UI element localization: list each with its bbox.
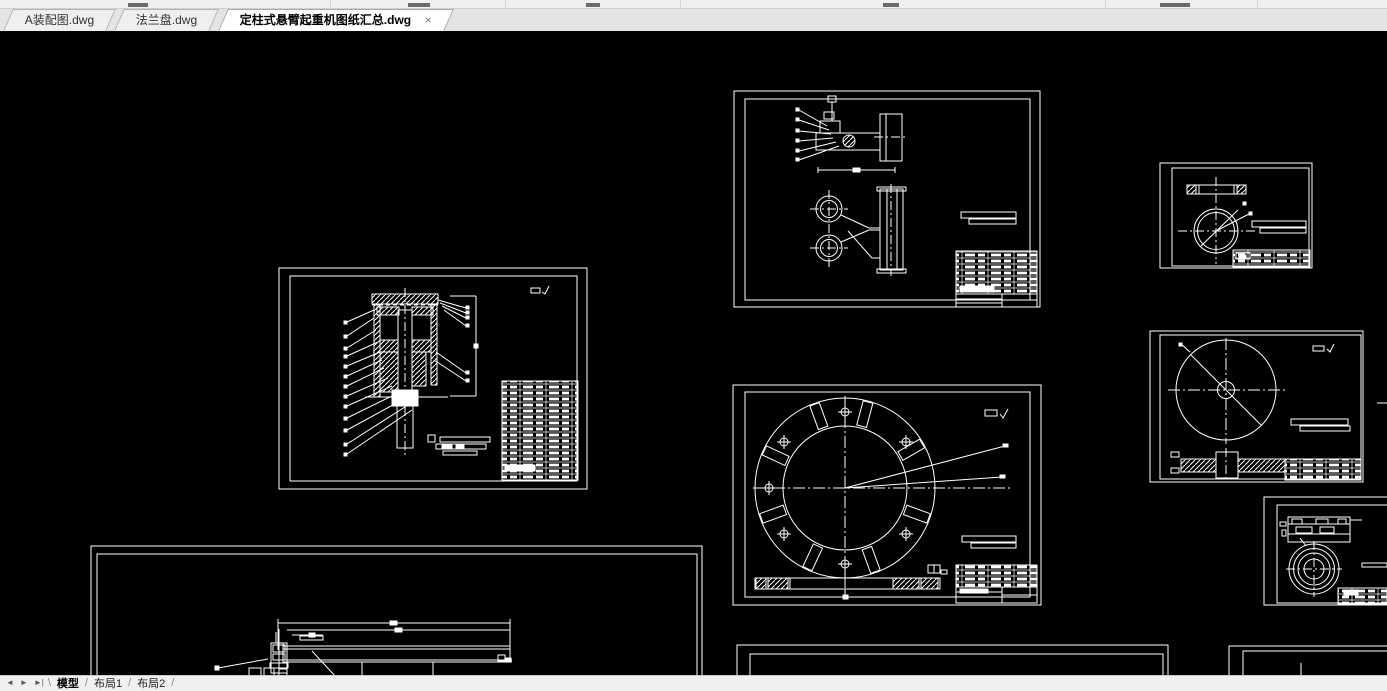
- layout-tab-bar: ◄ ► ►| \ 模型 / 布局1 / 布局2 /: [0, 675, 1387, 689]
- file-tab-flange[interactable]: 法兰盘.dwg: [114, 9, 219, 31]
- ribbon-panel-divider: [1257, 0, 1258, 8]
- file-tab-label: A装配图.dwg: [25, 10, 94, 31]
- sheet-disc-wheel[interactable]: [1150, 331, 1363, 482]
- sheet-bearing-detail[interactable]: [1264, 497, 1387, 605]
- ribbon-text-fragment: [408, 3, 430, 7]
- file-tab-label: 法兰盘.dwg: [136, 10, 197, 31]
- sheet-flange-face[interactable]: [733, 385, 1041, 605]
- file-tab-label: 定柱式悬臂起重机图纸汇总.dwg: [239, 10, 410, 31]
- note-bars: [961, 212, 1016, 224]
- tab-layout1[interactable]: 布局1: [89, 675, 127, 691]
- model-space-canvas[interactable]: [0, 31, 1387, 675]
- tab-nav-forward-icon[interactable]: ►: [20, 678, 28, 687]
- title-block: [1338, 588, 1387, 604]
- tab-nav-back-icon[interactable]: ◄: [6, 678, 14, 687]
- surface-finish-symbol: [985, 409, 1008, 418]
- ribbon-text-fragment: [586, 3, 600, 7]
- close-icon[interactable]: ×: [425, 10, 432, 31]
- title-block: [956, 251, 1037, 307]
- note-bars: [962, 536, 1016, 548]
- lower-roller-view: [810, 184, 906, 276]
- surface-finish-symbol: [1313, 344, 1334, 352]
- ribbon-panel-divider: [680, 0, 681, 8]
- parts-list-table: [502, 381, 578, 480]
- disc-view: [1168, 338, 1286, 444]
- tab-model[interactable]: 模型: [52, 675, 84, 691]
- file-tab-a-assembly[interactable]: A装配图.dwg: [3, 9, 116, 31]
- ribbon-panel-divider: [505, 0, 506, 8]
- ribbon-panel-divider: [330, 0, 331, 8]
- tab-layout2[interactable]: 布局2: [132, 675, 170, 691]
- sheet-crane-general-view[interactable]: [91, 546, 702, 675]
- title-block: [1285, 459, 1361, 480]
- ribbon-text-fragment: [1160, 3, 1190, 7]
- ribbon-panel-divider: [1105, 0, 1106, 8]
- ribbon-text-fragment: [883, 3, 899, 7]
- note-bars: [1291, 419, 1350, 431]
- file-tab-crane-summary[interactable]: 定柱式悬臂起重机图纸汇总.dwg×: [218, 9, 454, 31]
- sheet-roller-bracket[interactable]: [734, 91, 1040, 307]
- surface-finish-symbol: [531, 286, 549, 294]
- flange-circle-view: [753, 396, 1010, 588]
- ribbon-strip: [0, 0, 1387, 8]
- upper-section-view: [796, 96, 908, 173]
- bearing-top-view: [1280, 517, 1362, 542]
- bearing-circles-view: [1286, 538, 1342, 597]
- title-block: [1233, 250, 1310, 267]
- dimension-bracket: [450, 296, 478, 396]
- jib-beam-view: [215, 619, 512, 675]
- sheet-bottom-middle[interactable]: [737, 645, 1168, 675]
- sheet-column-assembly[interactable]: [279, 268, 587, 489]
- balloon-leaders-right: [434, 300, 469, 382]
- tab-separator: /: [170, 677, 175, 689]
- sheet-ring-plate[interactable]: [1160, 163, 1312, 268]
- ribbon-text-fragment: [128, 3, 148, 7]
- sheet-bottom-right[interactable]: [1229, 646, 1387, 675]
- note-bar: [1362, 563, 1387, 567]
- file-tab-bar: A装配图.dwg 法兰盘.dwg 定柱式悬臂起重机图纸汇总.dwg×: [0, 8, 1387, 31]
- hub-section-view: [1171, 448, 1285, 480]
- tab-nav-last-icon[interactable]: ►|: [34, 678, 44, 687]
- drawing-svg: [0, 31, 1387, 675]
- detail-note-bars: [428, 435, 490, 455]
- note-bars: [1252, 221, 1306, 233]
- flange-section-view: [755, 565, 947, 599]
